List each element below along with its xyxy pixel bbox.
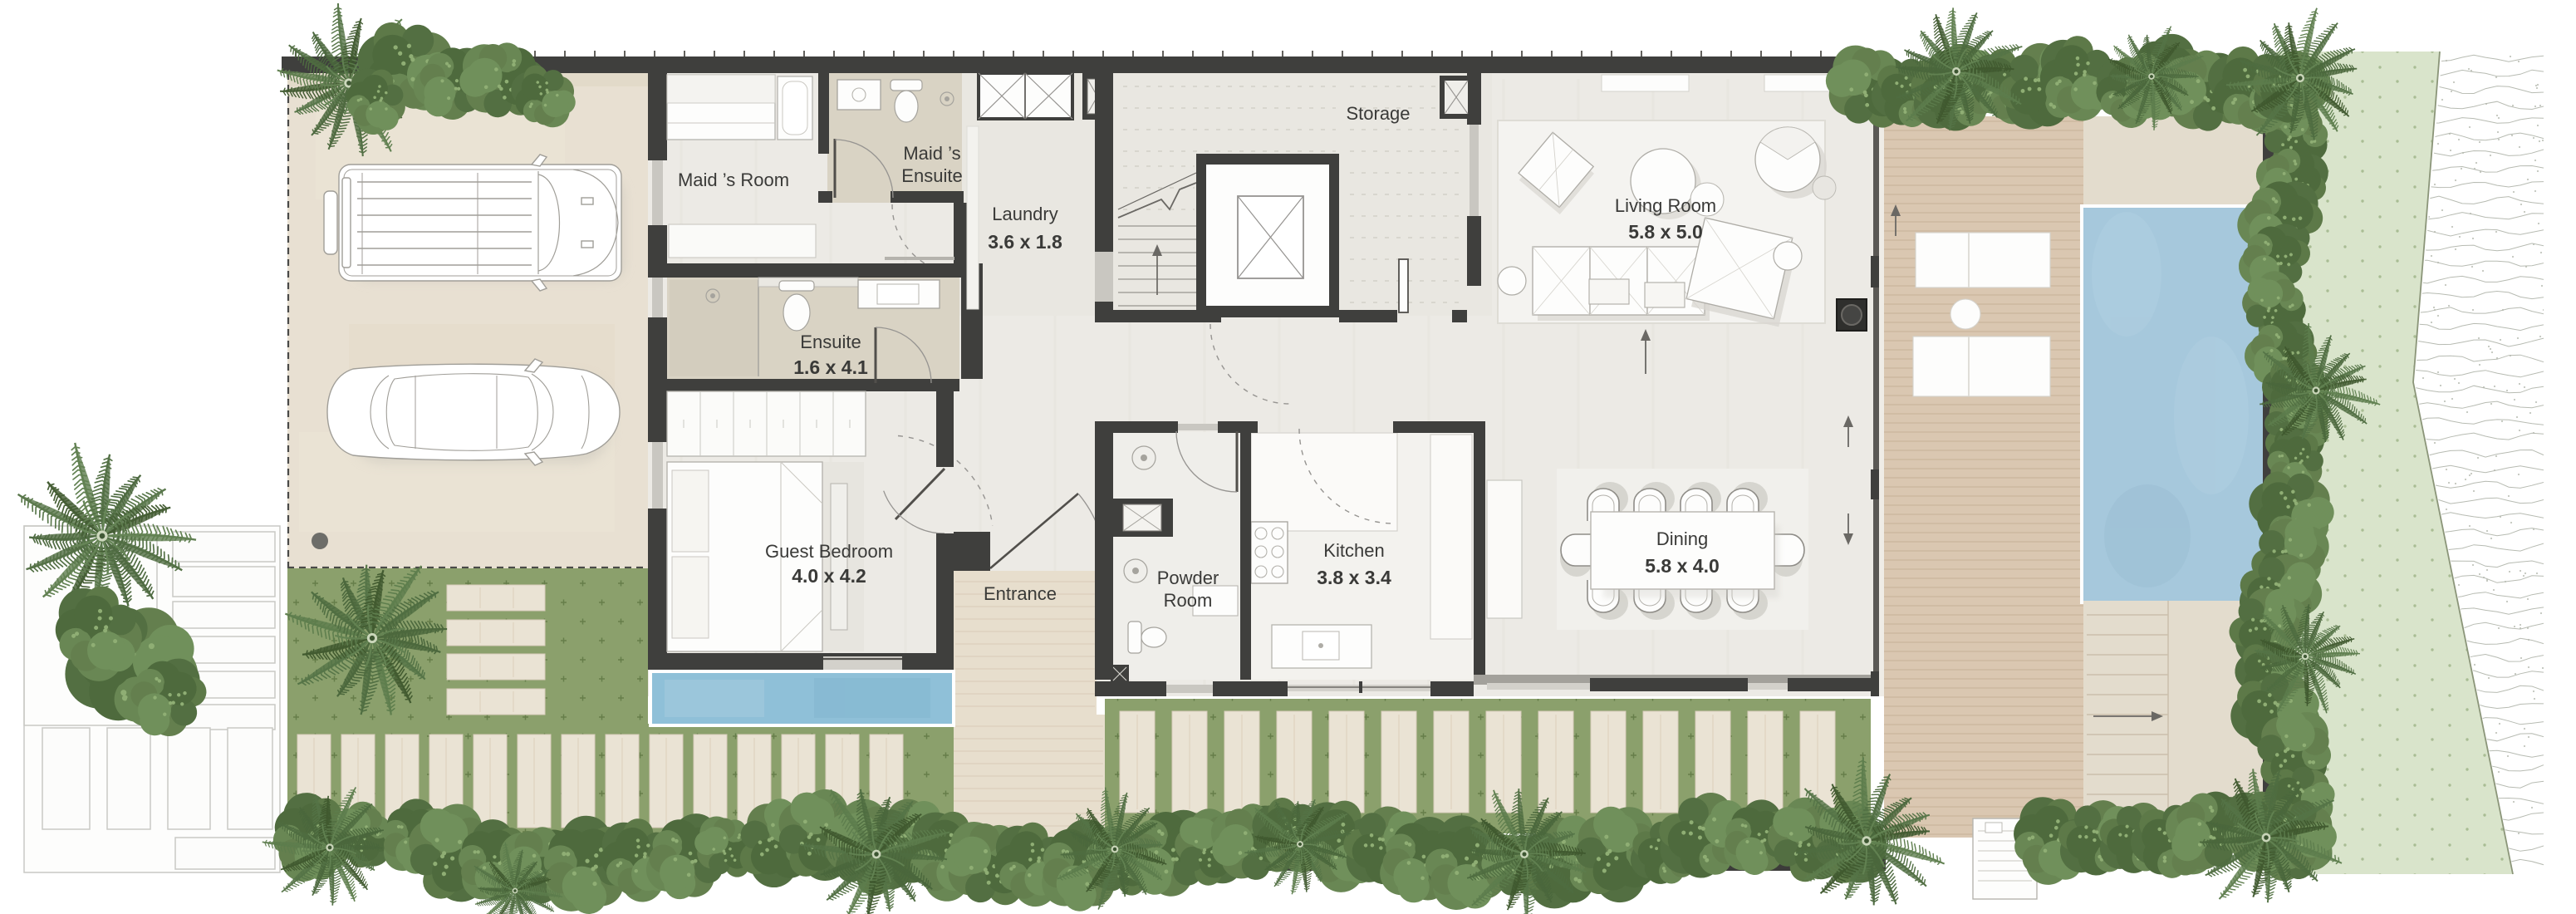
svg-text:Ensuite: Ensuite	[800, 332, 861, 352]
svg-text:3.8 x 3.4: 3.8 x 3.4	[1317, 567, 1391, 588]
svg-text:Powder: Powder	[1157, 568, 1219, 588]
svg-text:Entrance: Entrance	[984, 583, 1057, 604]
svg-text:Kitchen: Kitchen	[1323, 540, 1384, 561]
svg-text:Dining: Dining	[1656, 528, 1708, 549]
svg-text:Room: Room	[1164, 590, 1213, 611]
svg-text:5.8 x 5.0: 5.8 x 5.0	[1628, 221, 1703, 243]
svg-text:3.6 x 1.8: 3.6 x 1.8	[988, 231, 1062, 253]
svg-text:1.6 x 4.1: 1.6 x 4.1	[793, 356, 868, 378]
svg-text:Maid ’s: Maid ’s	[903, 143, 960, 164]
svg-text:Guest Bedroom: Guest Bedroom	[765, 541, 893, 562]
svg-text:Maid ’s Room: Maid ’s Room	[678, 170, 789, 190]
svg-text:Living Room: Living Room	[1615, 195, 1716, 216]
svg-text:Ensuite: Ensuite	[901, 165, 962, 186]
svg-text:5.8 x 4.0: 5.8 x 4.0	[1645, 555, 1720, 577]
svg-text:Storage: Storage	[1346, 103, 1410, 124]
svg-text:Laundry: Laundry	[992, 204, 1058, 224]
svg-text:4.0 x 4.2: 4.0 x 4.2	[792, 565, 866, 587]
